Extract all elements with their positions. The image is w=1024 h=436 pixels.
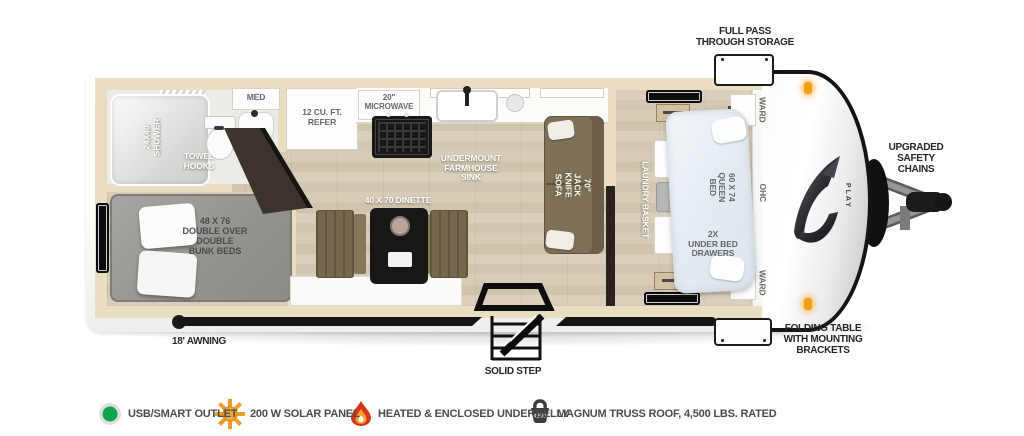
bunk-label: 48 X 76 DOUBLE OVER DOUBLE BUNK BEDS <box>160 216 270 256</box>
dinette-cushion <box>354 214 366 274</box>
bedroom-door <box>606 186 615 306</box>
full-pass-through-storage-label: FULL PASS THROUGH STORAGE <box>685 26 805 48</box>
wall-rear <box>95 78 107 318</box>
med-label: MED <box>232 93 280 103</box>
table-tray <box>388 252 412 267</box>
legend-heated-underbelly: HEATED & ENCLOSED UNDERBELLY <box>378 408 569 420</box>
legend-solar-panel: 200 W SOLAR PANEL <box>250 408 359 420</box>
wall-bottom <box>95 306 775 318</box>
awning-label: 18' AWNING <box>172 336 242 347</box>
storage-box-pin <box>721 58 724 61</box>
awning-bar <box>556 317 716 326</box>
angled-cabinet <box>215 122 335 222</box>
brand-swoosh-logo <box>788 134 850 264</box>
solid-step-label: SOLID STEP <box>473 366 553 377</box>
usb-outlet-icon <box>98 402 122 426</box>
legend-truss-roof: MAGNUM TRUSS ROOF, 4,500 LBS. RATED <box>557 408 777 420</box>
marker-light-top <box>804 82 812 94</box>
bedroom-window-bottom <box>644 292 700 305</box>
bathroom-faucet <box>251 110 258 117</box>
toilet-hinge <box>214 126 224 130</box>
dinette-bench <box>430 210 468 278</box>
table-bowl <box>390 216 410 236</box>
bunk-window <box>96 203 109 273</box>
sofa-pillow <box>547 119 575 140</box>
refer-label: 12 CU. FT. REFER <box>286 108 358 127</box>
marker-light-bottom <box>804 298 812 310</box>
awning-bar <box>178 317 482 326</box>
entry-mat <box>474 282 556 312</box>
sofa-pillow <box>545 229 575 250</box>
overhead-cabinet <box>540 88 604 98</box>
kitchen-faucet-stem <box>465 92 469 106</box>
upgraded-safety-chains-label: UPGRADED SAFETY CHAINS <box>880 142 952 176</box>
bunk-pillow <box>137 250 198 298</box>
cooktop-knob <box>386 112 391 117</box>
folding-table-pin <box>721 339 724 342</box>
counter-bowl <box>506 94 524 112</box>
sink-label: UNDERMOUNT FARMHOUSE SINK <box>428 154 514 183</box>
legend-usb-outlet: USB/SMART OUTLET <box>128 408 237 420</box>
microwave-label: 20" MICROWAVE <box>358 94 420 112</box>
cooktop-grate <box>378 122 426 152</box>
folding-table-pin <box>763 339 766 342</box>
cooktop-knob <box>404 112 409 117</box>
solid-step <box>480 314 550 366</box>
under-bed-drawers-label: 2X UNDER BED DRAWERS <box>678 230 748 259</box>
dinette-label: 40 X 70 DINETTE <box>348 196 448 206</box>
floorplan-canvas: 24X40 SHOWER MED TOWEL HOOKS 12 CU. FT. … <box>0 0 1024 436</box>
bedroom-window-top <box>646 90 702 103</box>
storage-box-pin <box>765 58 768 61</box>
folding-table-label: FOLDING TABLE WITH MOUNTING BRACKETS <box>778 323 868 357</box>
towel-hooks-label: TOWEL HOOKS <box>176 152 222 171</box>
